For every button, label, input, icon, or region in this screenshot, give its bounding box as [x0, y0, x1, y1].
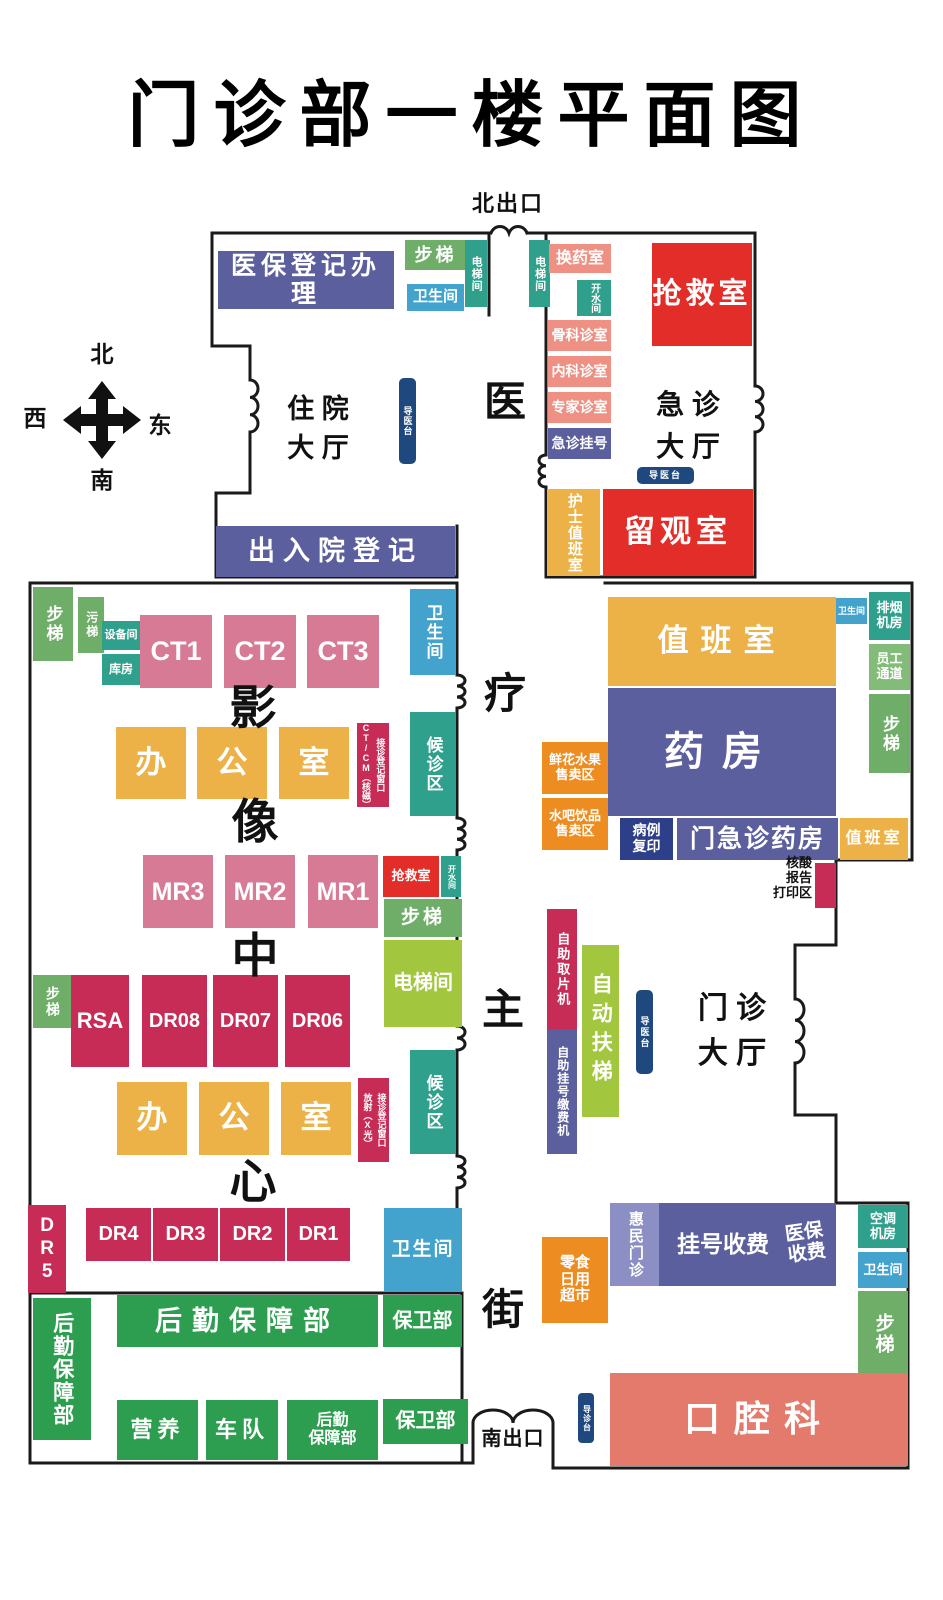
hall-menzhen-dating: 门 诊 大 厅	[652, 986, 812, 1076]
room-houqin-small: 后勤 保障部	[287, 1400, 378, 1460]
corridor-char-yi: 医	[482, 378, 528, 425]
room-daozhentai: 导诊台	[578, 1393, 594, 1443]
room-dr4: DR4	[86, 1208, 151, 1261]
room-buti-l1: 步梯	[33, 587, 73, 661]
compass-label-west: 西	[22, 406, 48, 432]
room-paiyan-jifang: 排烟 机房	[869, 592, 910, 640]
floor-plan: 门诊部一楼平面图 医保登记办理步	[0, 0, 943, 1600]
room-zhibanshi-big: 值班室	[608, 597, 836, 686]
hall-zhuyuan-dating: 住 院 大 厅	[248, 390, 388, 468]
corridor-char-zhu: 主	[480, 986, 526, 1033]
room-kongtiao-jifang: 空调 机房	[858, 1205, 908, 1248]
room-hesuan-block	[815, 863, 836, 908]
door-spring	[539, 455, 546, 487]
room-zizhu-guahao: 自助挂号缴费机	[547, 1029, 577, 1154]
room-xianhua: 鲜花水果 售卖区	[542, 742, 608, 794]
room-liuguanshi: 留观室	[603, 489, 753, 576]
south-exit-door	[473, 1410, 553, 1423]
room-kaishuijian-n: 开水间	[577, 280, 611, 316]
room-daoyitai-zhuyuan: 导医台	[399, 378, 416, 464]
room-diantijian-big: 电梯间	[384, 940, 462, 1027]
room-buti-north: 步梯	[405, 240, 466, 270]
north-exit-door	[491, 227, 527, 233]
room-diantijian-nw: 电梯间	[465, 240, 487, 307]
imaging-char-ying: 影	[224, 682, 282, 735]
room-yuangong-tongdao: 员工 通道	[869, 644, 910, 690]
room-huimin-menzhen: 惠民门诊	[610, 1203, 659, 1286]
compass-label-south: 南	[89, 468, 115, 494]
room-neike-zhenshi: 内科诊室	[548, 356, 611, 387]
room-mr2: MR2	[225, 855, 295, 928]
room-zidong-futi: 自动扶梯	[582, 945, 619, 1117]
imaging-char-zhong: 中	[228, 930, 282, 983]
room-chedui: 车队	[206, 1400, 278, 1460]
room-churuyuan-dengji: 出入院登记	[216, 526, 455, 577]
room-jizhen-guahao: 急诊挂号	[548, 428, 611, 459]
room-fangshe-window: 接诊登记窗口 放射（X光）	[358, 1078, 389, 1162]
compass-label-east: 东	[147, 413, 173, 439]
hesuan-print-label: 核酸 报告 打印区	[754, 856, 812, 901]
room-houzhenqu-1: 候诊区	[410, 712, 456, 816]
room-yibao-dengji: 医保登记办理	[218, 251, 394, 309]
room-bangongshi1-gong: 公	[197, 727, 267, 799]
door-spring	[457, 1156, 465, 1188]
north-exit-label: 北出口	[448, 192, 568, 217]
room-dr2: DR2	[220, 1208, 285, 1261]
room-menjizhen-yaofang: 门急诊药房	[677, 818, 838, 860]
room-weishengjian-r1: 卫生间	[836, 598, 867, 624]
room-guahao-shoufei-label: 挂号收费	[668, 1230, 778, 1260]
corridor-char-jie: 街	[480, 1286, 526, 1333]
room-daoyitai-menzhen: 导医台	[636, 990, 653, 1074]
imaging-char-xiang: 像	[226, 796, 284, 849]
room-qiangjiushi-small: 抢救室	[383, 856, 439, 897]
room-yingyang: 营养	[117, 1400, 198, 1460]
room-bangongshi2-ban: 办	[117, 1082, 187, 1155]
room-kufang: 库房	[102, 654, 140, 685]
room-dr06: DR06	[285, 975, 350, 1067]
hall-jizhen-dating: 急 诊 大 厅	[618, 384, 758, 468]
room-dr1: DR1	[287, 1208, 350, 1261]
room-daoyitai-jizhen: 导医台	[637, 467, 694, 484]
room-houzhenqu-2: 候诊区	[410, 1050, 456, 1154]
room-ctcm-window: 接诊登记窗口 CT/CM（核磁）	[357, 723, 389, 807]
room-buti-l2: 步梯	[384, 899, 462, 937]
room-ct1: CT1	[140, 615, 212, 688]
room-zhibanshi-small: 值班室	[840, 818, 908, 860]
room-buti-r2: 步梯	[858, 1291, 908, 1377]
room-kaishuijian-l: 开水间	[441, 856, 461, 897]
room-guke-zhenshi: 骨科诊室	[548, 320, 611, 351]
room-houqin-main: 后勤保障部	[117, 1295, 378, 1347]
room-bangongshi2-gong: 公	[199, 1082, 269, 1155]
room-yibao-shoufei-label: 医保 收费	[775, 1216, 836, 1269]
room-bangongshi2-shi: 室	[281, 1082, 351, 1155]
room-mr3: MR3	[143, 855, 213, 928]
corridor-char-liao: 疗	[482, 670, 528, 717]
room-buti-l3: 步梯	[33, 975, 71, 1028]
room-qiangjiushi-big: 抢救室	[652, 243, 752, 346]
room-bangongshi1-ban: 办	[116, 727, 186, 799]
compass-icon	[63, 381, 141, 459]
room-shebeijian: 设备间	[102, 621, 140, 650]
room-weishengjian-l1: 卫生间	[410, 589, 456, 675]
imaging-char-xin: 心	[222, 1156, 284, 1209]
room-kouqiangke: 口腔科	[610, 1373, 908, 1466]
room-diantijian-ne: 电梯间	[529, 240, 550, 307]
room-dr08: DR08	[142, 975, 207, 1067]
room-mr1: MR1	[308, 855, 378, 928]
south-exit-label: 南出口	[453, 1428, 573, 1450]
room-houqin-vert: 后勤保障部	[33, 1298, 91, 1440]
room-baoweibu-top: 保卫部	[383, 1295, 462, 1347]
room-bingli-fuyin: 病例 复印	[620, 818, 673, 860]
room-ct3: CT3	[307, 615, 379, 688]
room-weishengjian-north: 卫生间	[407, 284, 464, 311]
room-ct2: CT2	[224, 615, 296, 688]
room-dr3: DR3	[153, 1208, 218, 1261]
room-buti-r1: 步梯	[869, 694, 910, 773]
room-huanyaoshi: 换药室	[549, 244, 611, 273]
room-yaofang: 药房	[608, 688, 836, 816]
room-rsa: RSA	[71, 975, 129, 1067]
door-spring	[457, 1026, 465, 1050]
room-zizhu-qupianji: 自助取片机	[547, 909, 577, 1029]
compass-label-north: 北	[89, 342, 115, 368]
room-dr5: DR5	[28, 1205, 66, 1293]
room-wuti: 污梯	[78, 597, 104, 653]
room-bangongshi1-shi: 室	[279, 727, 349, 799]
door-spring	[457, 675, 465, 708]
room-zhuanjia-zhenshi: 专家诊室	[548, 392, 611, 423]
room-weishengjian-r2: 卫生间	[858, 1252, 908, 1288]
room-dr07: DR07	[213, 975, 278, 1067]
door-spring	[457, 818, 465, 850]
room-hushi-zhibanshi: 护士值班室	[547, 489, 600, 576]
room-lingshi-chaoshi: 零食 日用 超市	[542, 1237, 608, 1323]
room-weishengjian-l2: 卫生间	[384, 1208, 462, 1292]
room-shuiba: 水吧饮品 售卖区	[542, 798, 608, 850]
